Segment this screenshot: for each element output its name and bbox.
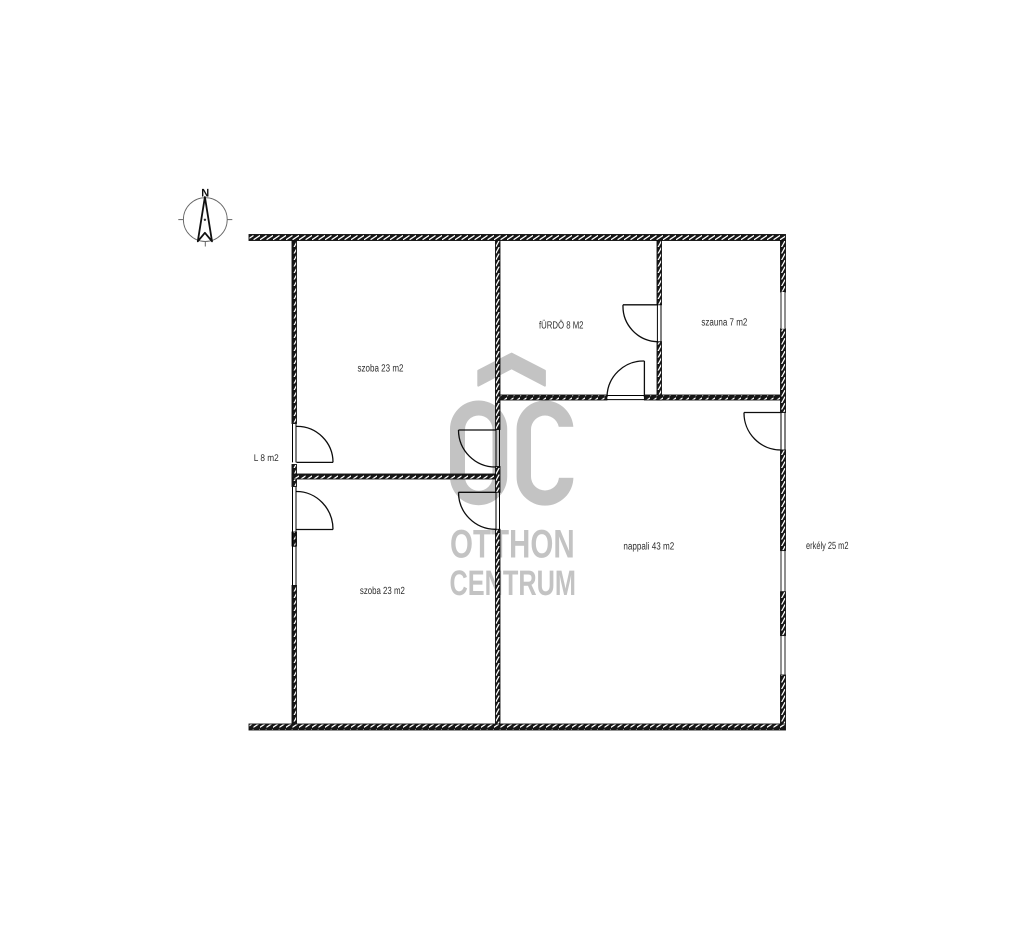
svg-text:szauna 7 m2: szauna 7 m2 (701, 318, 747, 329)
svg-text:erkély 25 m2: erkély 25 m2 (806, 541, 849, 552)
svg-text:fÜRDÖ 8 M2: fÜRDÖ 8 M2 (539, 319, 584, 331)
svg-text:nappali 43 m2: nappali 43 m2 (623, 541, 674, 552)
svg-text:N: N (201, 187, 209, 199)
svg-text:szoba 23 m2: szoba 23 m2 (358, 364, 404, 375)
svg-text:CENTRUM: CENTRUM (450, 563, 577, 603)
svg-text:szoba 23 m2: szoba 23 m2 (360, 586, 405, 597)
svg-text:L 8 m2: L 8 m2 (254, 453, 279, 464)
svg-text:OTTHON: OTTHON (450, 523, 575, 567)
